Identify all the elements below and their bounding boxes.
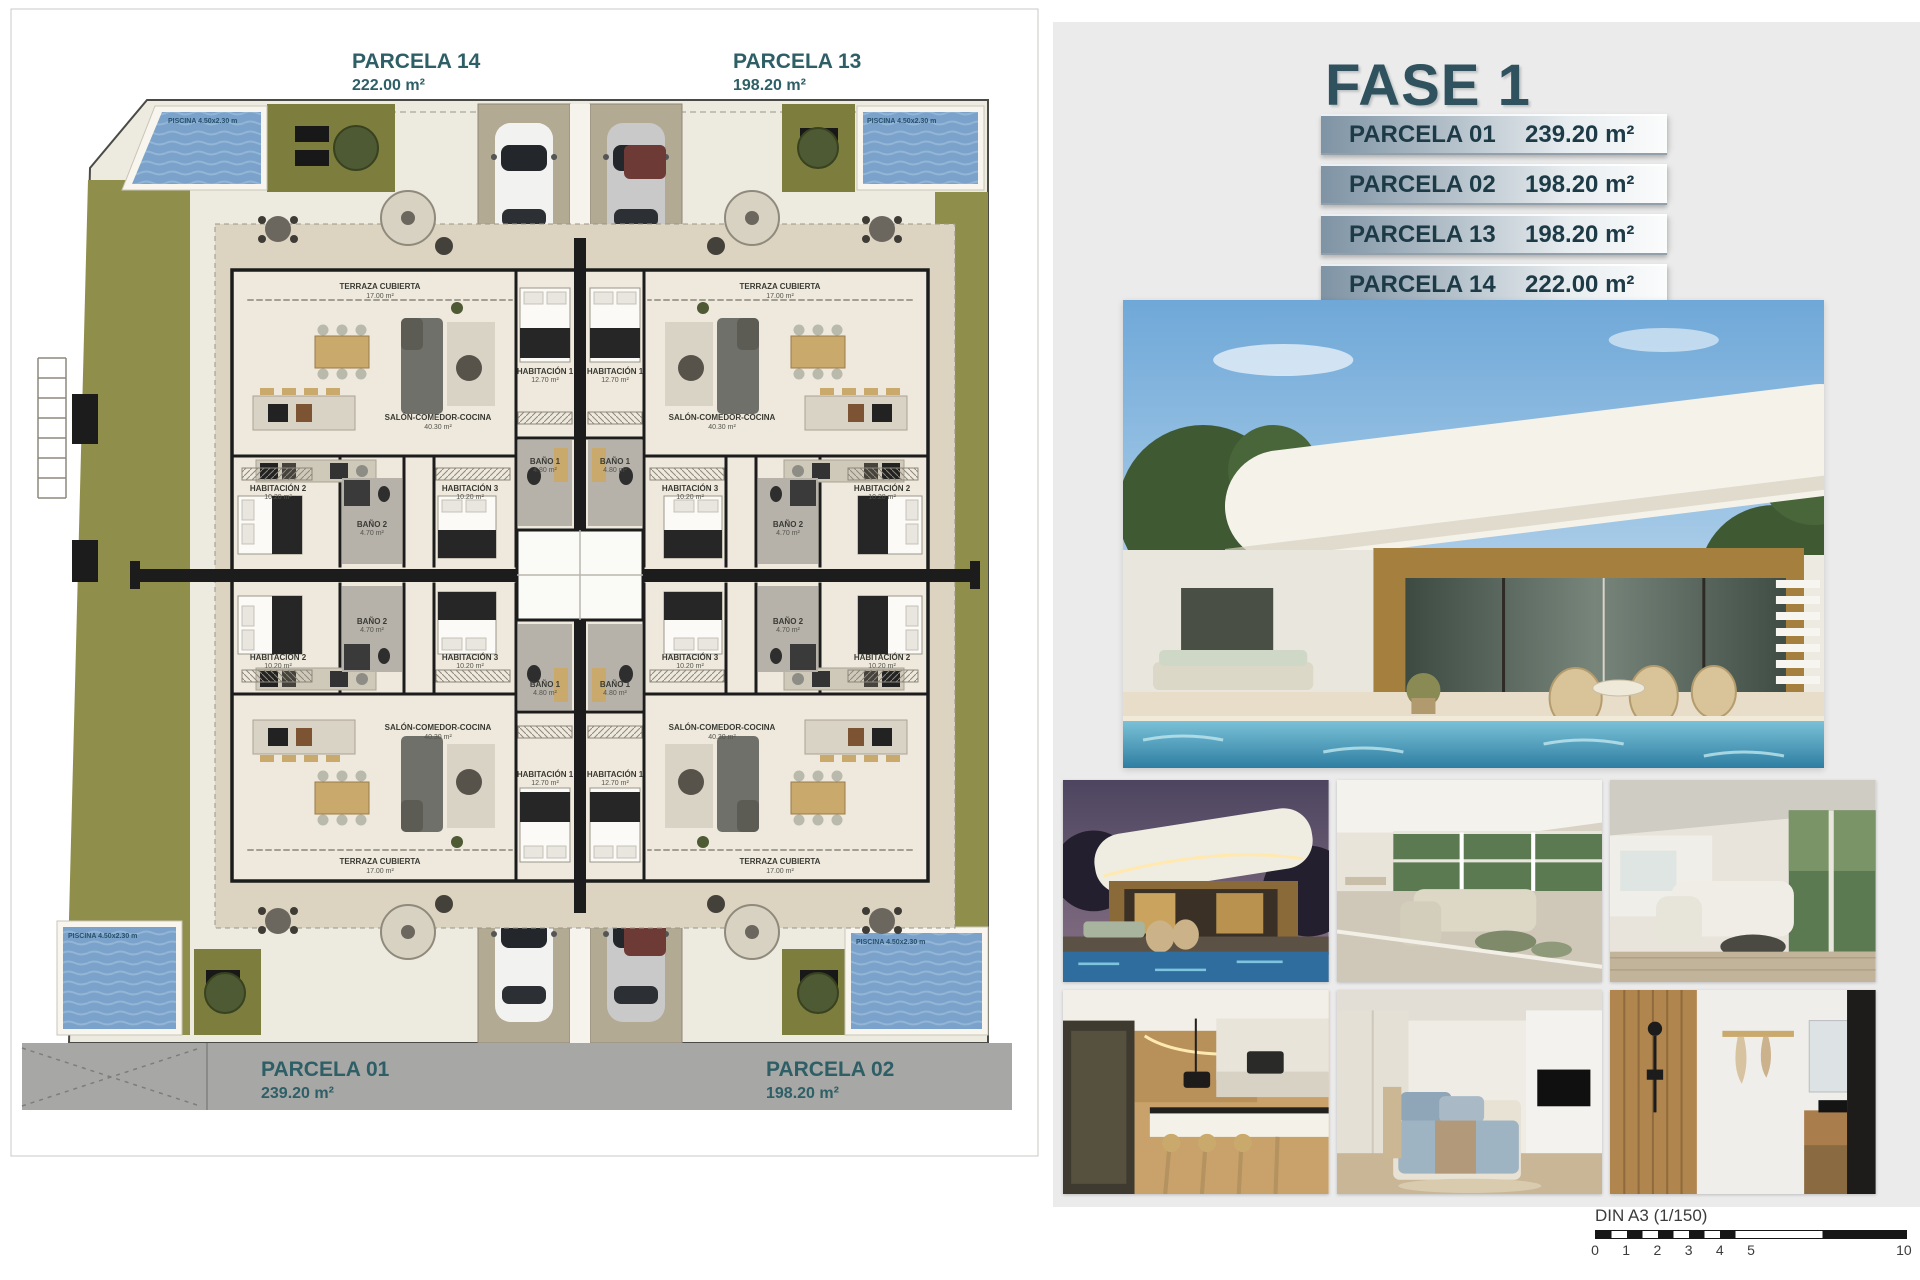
svg-text:4.70 m²: 4.70 m² bbox=[360, 627, 384, 634]
row-parcel-name: PARCELA 02 bbox=[1349, 171, 1525, 199]
tick-label: 3 bbox=[1685, 1242, 1693, 1258]
svg-text:SALÓN-COMEDOR-COCINA: SALÓN-COMEDOR-COCINA bbox=[669, 723, 776, 732]
scale-bar-graphic bbox=[1595, 1230, 1907, 1239]
svg-text:HABITACIÓN 1: HABITACIÓN 1 bbox=[517, 367, 574, 376]
svg-text:12.70 m²: 12.70 m² bbox=[531, 377, 559, 384]
pool-label: PISCINA 4.50x2.30 m bbox=[68, 933, 137, 940]
photo-living-room-2 bbox=[1610, 780, 1876, 982]
svg-text:HABITACIÓN 1: HABITACIÓN 1 bbox=[587, 770, 644, 779]
svg-text:4.80 m²: 4.80 m² bbox=[603, 467, 627, 474]
svg-text:10.20 m²: 10.20 m² bbox=[676, 494, 704, 501]
svg-text:HABITACIÓN 1: HABITACIÓN 1 bbox=[587, 367, 644, 376]
svg-text:BAÑO 1: BAÑO 1 bbox=[530, 457, 561, 466]
photo-exterior-night bbox=[1063, 780, 1329, 982]
svg-text:4.80 m²: 4.80 m² bbox=[603, 690, 627, 697]
tick-label: 1 bbox=[1622, 1242, 1630, 1258]
svg-text:10.20 m²: 10.20 m² bbox=[868, 494, 896, 501]
pool-bottom-right: PISCINA 4.50x2.30 m bbox=[845, 927, 988, 1035]
svg-text:40.30 m²: 40.30 m² bbox=[424, 734, 452, 741]
svg-text:BAÑO 2: BAÑO 2 bbox=[357, 520, 388, 529]
svg-text:BAÑO 1: BAÑO 1 bbox=[600, 680, 631, 689]
row-parcel-name: PARCELA 14 bbox=[1349, 271, 1525, 299]
svg-text:4.70 m²: 4.70 m² bbox=[776, 530, 800, 537]
pool-label: PISCINA 4.50x2.30 m bbox=[856, 939, 925, 946]
pool-label: PISCINA 4.50x2.30 m bbox=[168, 118, 237, 125]
svg-text:12.70 m²: 12.70 m² bbox=[601, 377, 629, 384]
svg-text:HABITACIÓN 3: HABITACIÓN 3 bbox=[442, 653, 499, 662]
brochure-page: PARCELA 14 222.00 m² PARCELA 13 198.20 m… bbox=[0, 0, 1920, 1280]
row-parcel-name: PARCELA 13 bbox=[1349, 221, 1525, 249]
svg-text:BAÑO 2: BAÑO 2 bbox=[773, 617, 804, 626]
scale-bar: DIN A3 (1/150) 0 1 2 3 4 5 10 bbox=[1595, 1206, 1907, 1260]
svg-text:HABITACIÓN 2: HABITACIÓN 2 bbox=[854, 484, 911, 493]
svg-text:17.00 m²: 17.00 m² bbox=[766, 868, 794, 875]
svg-text:HABITACIÓN 3: HABITACIÓN 3 bbox=[662, 653, 719, 662]
pool-top-right: PISCINA 4.50x2.30 m bbox=[857, 106, 984, 190]
svg-text:TERRAZA CUBIERTA: TERRAZA CUBIERTA bbox=[340, 282, 421, 291]
svg-text:HABITACIÓN 2: HABITACIÓN 2 bbox=[250, 484, 307, 493]
parcel-area: 198.20 m² bbox=[733, 77, 806, 94]
svg-text:4.70 m²: 4.70 m² bbox=[360, 530, 384, 537]
parcel-name: PARCELA 14 bbox=[352, 50, 481, 73]
svg-text:BAÑO 1: BAÑO 1 bbox=[600, 457, 631, 466]
svg-text:4.80 m²: 4.80 m² bbox=[533, 467, 557, 474]
photo-living-room bbox=[1337, 780, 1603, 982]
row-parcel-area: 198.20 m² bbox=[1525, 221, 1667, 249]
svg-text:40.30 m²: 40.30 m² bbox=[708, 424, 736, 431]
photo-bathroom bbox=[1610, 990, 1876, 1194]
svg-text:10.20 m²: 10.20 m² bbox=[868, 663, 896, 670]
floor-plan: PARCELA 14 222.00 m² PARCELA 13 198.20 m… bbox=[10, 8, 1040, 1158]
svg-text:239.20 m²: 239.20 m² bbox=[261, 1085, 334, 1102]
pool-bottom-left: PISCINA 4.50x2.30 m bbox=[57, 921, 182, 1035]
row-parcel-name: PARCELA 01 bbox=[1349, 121, 1525, 149]
utility-box bbox=[72, 394, 98, 444]
svg-text:PARCELA 01: PARCELA 01 bbox=[261, 1058, 390, 1081]
floor-plan-sheet: PARCELA 14 222.00 m² PARCELA 13 198.20 m… bbox=[10, 8, 1040, 1158]
table-row: PARCELA 14 222.00 m² bbox=[1321, 264, 1667, 305]
tick-label: 5 bbox=[1747, 1242, 1755, 1258]
photo-kitchen-dining bbox=[1063, 990, 1329, 1194]
svg-text:TERRAZA CUBIERTA: TERRAZA CUBIERTA bbox=[340, 857, 421, 866]
svg-text:HABITACIÓN 3: HABITACIÓN 3 bbox=[662, 484, 719, 493]
svg-text:BAÑO 2: BAÑO 2 bbox=[773, 520, 804, 529]
svg-text:PARCELA 02: PARCELA 02 bbox=[766, 1058, 894, 1081]
parcel-table: PARCELA 01 239.20 m² PARCELA 02 198.20 m… bbox=[1321, 114, 1667, 314]
svg-text:17.00 m²: 17.00 m² bbox=[366, 293, 394, 300]
parcel-name: PARCELA 13 bbox=[733, 50, 861, 73]
row-parcel-area: 198.20 m² bbox=[1525, 171, 1667, 199]
photo-grid bbox=[1063, 780, 1876, 1194]
utility-box bbox=[72, 540, 98, 582]
svg-text:SALÓN-COMEDOR-COCINA: SALÓN-COMEDOR-COCINA bbox=[385, 413, 492, 422]
svg-text:12.70 m²: 12.70 m² bbox=[531, 780, 559, 787]
svg-text:10.20 m²: 10.20 m² bbox=[456, 663, 484, 670]
svg-text:40.30 m²: 40.30 m² bbox=[424, 424, 452, 431]
svg-text:17.00 m²: 17.00 m² bbox=[766, 293, 794, 300]
svg-text:SALÓN-COMEDOR-COCINA: SALÓN-COMEDOR-COCINA bbox=[669, 413, 776, 422]
svg-text:TERRAZA CUBIERTA: TERRAZA CUBIERTA bbox=[740, 857, 821, 866]
svg-text:10.20 m²: 10.20 m² bbox=[676, 663, 704, 670]
svg-text:10.20 m²: 10.20 m² bbox=[456, 494, 484, 501]
svg-text:HABITACIÓN 3: HABITACIÓN 3 bbox=[442, 484, 499, 493]
svg-text:4.80 m²: 4.80 m² bbox=[533, 690, 557, 697]
svg-text:4.70 m²: 4.70 m² bbox=[776, 627, 800, 634]
pool-label: PISCINA 4.50x2.30 m bbox=[867, 118, 936, 125]
svg-text:BAÑO 2: BAÑO 2 bbox=[357, 617, 388, 626]
svg-text:10.20 m²: 10.20 m² bbox=[264, 663, 292, 670]
parcel-area: 222.00 m² bbox=[352, 77, 425, 94]
svg-text:SALÓN-COMEDOR-COCINA: SALÓN-COMEDOR-COCINA bbox=[385, 723, 492, 732]
svg-text:198.20 m²: 198.20 m² bbox=[766, 1085, 839, 1102]
svg-text:HABITACIÓN 1: HABITACIÓN 1 bbox=[517, 770, 574, 779]
svg-text:BAÑO 1: BAÑO 1 bbox=[530, 680, 561, 689]
photo-bedroom bbox=[1337, 990, 1603, 1194]
row-parcel-area: 239.20 m² bbox=[1525, 121, 1667, 149]
svg-text:HABITACIÓN 2: HABITACIÓN 2 bbox=[854, 653, 911, 662]
info-panel: FASE 1 PARCELA 01 239.20 m² PARCELA 02 1… bbox=[1053, 22, 1920, 1207]
tick-label: 0 bbox=[1591, 1242, 1599, 1258]
central-patio bbox=[517, 530, 643, 620]
table-row: PARCELA 02 198.20 m² bbox=[1321, 164, 1667, 205]
scale-bar-label: DIN A3 (1/150) bbox=[1595, 1206, 1907, 1226]
phase-title: FASE 1 bbox=[1325, 52, 1531, 119]
row-parcel-area: 222.00 m² bbox=[1525, 271, 1667, 299]
svg-text:17.00 m²: 17.00 m² bbox=[366, 868, 394, 875]
photo-hero-villa bbox=[1123, 300, 1824, 768]
svg-text:40.30 m²: 40.30 m² bbox=[708, 734, 736, 741]
tick-label: 2 bbox=[1653, 1242, 1661, 1258]
svg-text:HABITACIÓN 2: HABITACIÓN 2 bbox=[250, 653, 307, 662]
scale-bar-ticks: 0 1 2 3 4 5 10 bbox=[1595, 1242, 1907, 1260]
table-row: PARCELA 13 198.20 m² bbox=[1321, 214, 1667, 255]
tick-label: 4 bbox=[1716, 1242, 1724, 1258]
svg-text:TERRAZA CUBIERTA: TERRAZA CUBIERTA bbox=[740, 282, 821, 291]
tick-label: 10 bbox=[1896, 1242, 1912, 1258]
table-row: PARCELA 01 239.20 m² bbox=[1321, 114, 1667, 155]
svg-text:10.20 m²: 10.20 m² bbox=[264, 494, 292, 501]
svg-text:12.70 m²: 12.70 m² bbox=[601, 780, 629, 787]
